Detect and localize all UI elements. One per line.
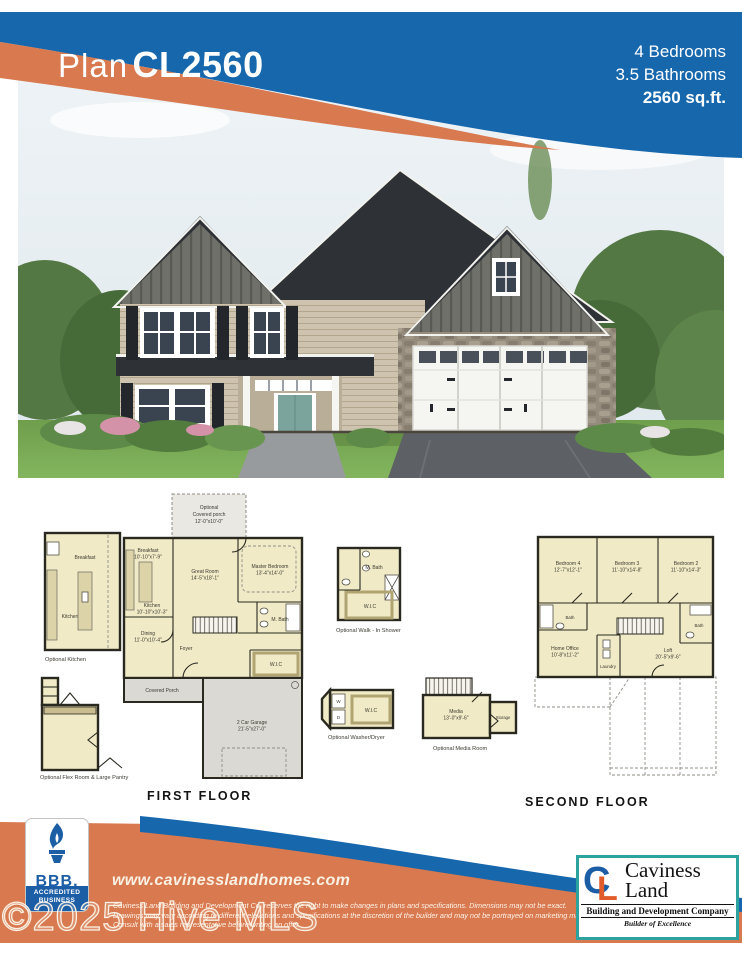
room-dims-home-office: 10'-8"x11'-2" bbox=[551, 653, 579, 659]
room-label-kitchen: Kitchen bbox=[144, 603, 161, 609]
optional-porch-label-2: Covered porch bbox=[193, 512, 226, 518]
plan-word: Plan bbox=[58, 47, 128, 84]
room-label-home-office: Home Office bbox=[551, 646, 579, 652]
room-label-loft: Loft bbox=[664, 648, 673, 654]
room-label-laundry: Laundry bbox=[600, 664, 617, 669]
flyer-page: Plan CL2560 4 Bedrooms 3.5 Bathrooms 256… bbox=[0, 0, 742, 960]
inset-shower-wic-label: W.I.C bbox=[364, 604, 377, 610]
room-label-dining: Dining bbox=[141, 631, 155, 637]
floor-plans: .room{fill:#f0eac6;stroke:#29291f;stroke… bbox=[0, 480, 742, 810]
optional-kitchen-caption: Optional Kitchen bbox=[45, 657, 86, 663]
optional-porch-label-1: Optional bbox=[200, 505, 219, 511]
porch-column bbox=[332, 376, 339, 432]
inset-shower-mbath-label: M. Bath bbox=[365, 565, 382, 571]
inset-kitchen-kitchen-label: Kitchen bbox=[62, 614, 79, 620]
kitchen-island bbox=[139, 562, 152, 602]
walk-in-shower-caption: Optional Walk - In Shower bbox=[336, 628, 401, 634]
optional-media-room-inset: Media 13'-0"x9'-6" Storage Optional Medi… bbox=[423, 678, 516, 752]
room-label-bath-left: Bath bbox=[565, 615, 575, 620]
caviness-name-line1: Caviness bbox=[625, 860, 701, 880]
room-label-bath-right: Bath bbox=[694, 623, 704, 628]
room-label-covered-porch: Covered Porch bbox=[145, 688, 179, 694]
washer-dryer-caption: Optional Washer/Dryer bbox=[328, 735, 385, 741]
room-dims-bedroom3: 11'-10"x14'-8" bbox=[612, 568, 643, 574]
caviness-land-logo: C L Caviness Land Building and Developme… bbox=[576, 855, 739, 940]
room-label-mbath: M. Bath bbox=[271, 617, 288, 623]
room-dims-garage: 21'-5"x27'-0" bbox=[238, 727, 266, 733]
garage-door bbox=[413, 346, 587, 430]
room-dims-bedroom2: 11'-10"x14'-3" bbox=[671, 568, 702, 574]
bath-left-tub bbox=[540, 605, 553, 628]
bedrooms-count: 4 Bedrooms bbox=[615, 40, 726, 63]
watermark-text: ©2025 Hive MLS bbox=[2, 895, 319, 939]
room-label-bedroom4: Bedroom 4 bbox=[556, 561, 581, 567]
room-label-garage: 2 Car Garage bbox=[237, 720, 268, 726]
plan-code: CL2560 bbox=[133, 44, 264, 85]
bbb-torch-icon bbox=[27, 819, 87, 867]
room-label-master: Master Bedroom bbox=[252, 564, 289, 570]
second-floor-plan: Bedroom 4 12'-7"x12'-1" Bedroom 3 11'-10… bbox=[535, 537, 716, 775]
optional-kitchen-inset: Breakfast Kitchen Optional Kitchen bbox=[45, 533, 120, 663]
optional-washer-dryer-inset: W D W.I.C Optional Washer/Dryer bbox=[322, 690, 393, 741]
room-label-bedroom3: Bedroom 3 bbox=[615, 561, 640, 567]
room-label-wic: W.I.C bbox=[270, 662, 283, 668]
room-dims-great-room: 14'-5"x18'-1" bbox=[191, 576, 219, 582]
caviness-monogram-icon: C L bbox=[581, 860, 623, 902]
upper-windows bbox=[126, 306, 298, 360]
media-room-label: Media bbox=[449, 709, 463, 715]
first-floor-plan: Optional Covered porch 12'-0"x10'-0" bbox=[124, 494, 302, 778]
caviness-tagline: Builder of Excellence bbox=[579, 918, 736, 928]
optional-porch-dims: 12'-0"x10'-0" bbox=[195, 519, 223, 525]
page-title: Plan CL2560 bbox=[58, 44, 264, 86]
optional-walk-in-shower-inset: M. Bath W.I.C Optional Walk - In Shower bbox=[336, 548, 401, 634]
storage-label: Storage bbox=[496, 715, 511, 720]
first-floor-title: FIRST FLOOR bbox=[147, 789, 252, 803]
room-dims-master: 13'-4"x14'-0" bbox=[256, 571, 284, 577]
media-room-caption: Optional Media Room bbox=[433, 746, 487, 752]
room-label-foyer: Foyer bbox=[180, 646, 193, 652]
porch-column bbox=[243, 376, 250, 432]
room-dims-loft: 20'-5"x9'-6" bbox=[655, 655, 680, 661]
room-label-bedroom2: Bedroom 2 bbox=[674, 561, 699, 567]
room-label-breakfast: Breakfast bbox=[137, 548, 159, 554]
sqft-value: 2560 sq.ft. bbox=[615, 86, 726, 109]
stairs-second-floor bbox=[617, 618, 663, 634]
room-label-great-room: Great Room bbox=[191, 569, 218, 575]
caviness-name: Caviness Land bbox=[625, 860, 701, 900]
mls-watermark: ©2025 Hive MLS bbox=[0, 886, 480, 948]
media-room-dims: 13'-0"x9'-6" bbox=[443, 716, 468, 722]
bath-right-tub bbox=[690, 605, 711, 615]
second-floor-title: SECOND FLOOR bbox=[525, 795, 650, 809]
room-dims-bedroom4: 12'-7"x12'-1" bbox=[554, 568, 582, 574]
stairs-media bbox=[426, 678, 472, 695]
bathrooms-count: 3.5 Bathrooms bbox=[615, 63, 726, 86]
room-dims-breakfast: 10'-10"x7'-9" bbox=[134, 555, 162, 561]
room-dims-dining: 11'-0"x10'-4" bbox=[134, 638, 162, 644]
monogram-l: L bbox=[597, 870, 618, 902]
optional-flex-inset: Optional Flex Room & Large Pantry bbox=[40, 678, 129, 781]
caviness-subtitle: Building and Development Company bbox=[581, 904, 734, 918]
caviness-name-line2: Land bbox=[625, 880, 701, 900]
inset-kitchen-breakfast-label: Breakfast bbox=[74, 555, 96, 561]
optional-flex-caption: Optional Flex Room & Large Pantry bbox=[40, 775, 129, 781]
header-stats: 4 Bedrooms 3.5 Bathrooms 2560 sq.ft. bbox=[615, 40, 726, 109]
inset-wd-wic-label: W.I.C bbox=[365, 708, 378, 714]
stairs-first-floor bbox=[193, 617, 237, 633]
room-dims-kitchen: 10'-10"x10'-3" bbox=[137, 610, 168, 616]
